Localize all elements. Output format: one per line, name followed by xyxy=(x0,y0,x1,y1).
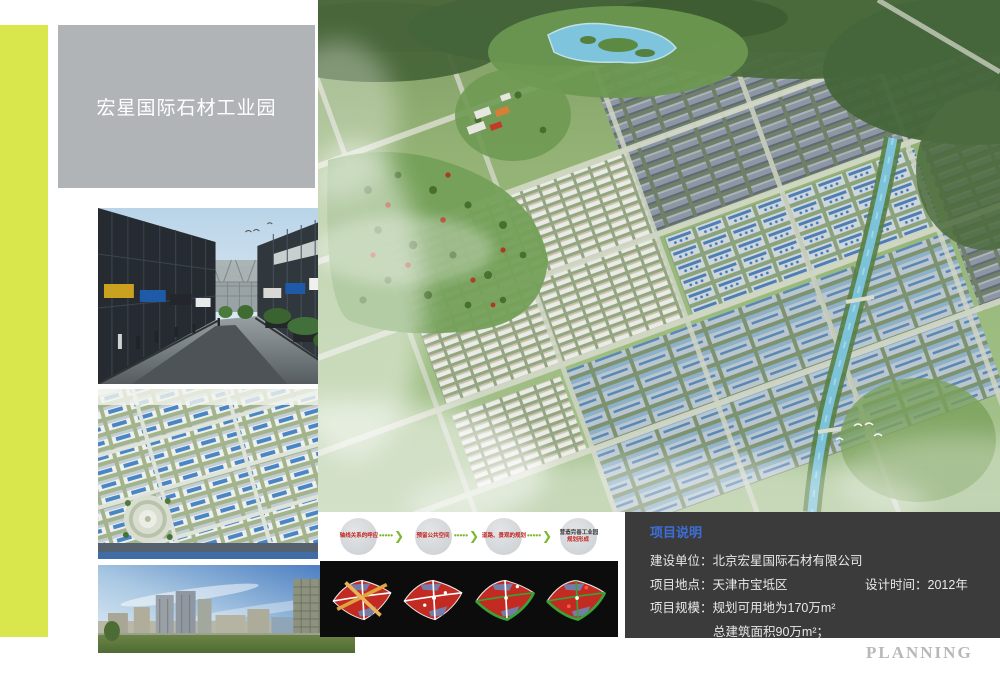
flow-step-4-label: 营造完善工业园 xyxy=(559,530,598,536)
builder-label: 建设单位： xyxy=(650,554,713,568)
diagram-landscape-analysis xyxy=(472,571,538,627)
photo-skyline-view xyxy=(98,565,355,653)
flow-step-1: 轴线关系的呼应 xyxy=(340,518,377,555)
flow-step-4-sublabel: 规划形成 xyxy=(567,537,589,543)
flow-step-3-label: 道路、景观的规划 xyxy=(481,533,525,539)
info-row-floor-area: 总建筑面积90万m²； xyxy=(650,621,1000,645)
flow-step-4: 营造完善工业园 规划形成 xyxy=(560,518,597,555)
location-value: 天津市宝坻区 xyxy=(713,578,788,592)
design-time-label: 设计时间： xyxy=(865,578,928,592)
builder-value: 北京宏星国际石材有限公司 xyxy=(713,554,863,568)
design-time-value: 2012年 xyxy=(928,578,968,592)
masterplan-image xyxy=(318,0,1000,512)
diagram-plan-synthesis xyxy=(543,571,609,627)
photo-street-view xyxy=(98,208,355,384)
board-title: 宏星国际石材工业园 xyxy=(96,93,276,120)
info-row-builder: 建设单位：北京宏星国际石材有限公司 xyxy=(650,550,1000,574)
concept-flow: 轴线关系的呼应 •••••❯ 预留公共空间 •••••❯ 道路、景观的规划 ••… xyxy=(318,512,622,561)
flow-step-2-label: 预留公共空间 xyxy=(417,533,450,539)
info-panel-title: 项目说明 xyxy=(650,522,1000,541)
scale-value: 规划可用地为170万m² xyxy=(713,601,836,615)
info-row-scale: 项目规模：规划可用地为170万m² xyxy=(650,597,1000,621)
flow-arrow-icon: •••••❯ xyxy=(454,531,479,541)
photo-aerial-park xyxy=(98,389,355,559)
design-time: 设计时间：2012年 xyxy=(865,574,968,598)
flow-arrow-icon: •••••❯ xyxy=(527,531,552,541)
skyline-image xyxy=(98,565,355,653)
street-view-image xyxy=(98,208,355,384)
presentation-board: 宏星国际石材工业园 xyxy=(0,0,1000,678)
project-info-panel: 项目说明 建设单位：北京宏星国际石材有限公司 项目地点：天津市宝坻区 设计时间：… xyxy=(625,512,1000,638)
floor-area-value: 总建筑面积90万m²； xyxy=(713,625,829,639)
diagram-axis-analysis xyxy=(329,571,395,627)
masterplan-rendering xyxy=(318,0,1000,512)
planning-watermark: PLANNING xyxy=(866,643,973,663)
scale-label: 项目规模： xyxy=(650,601,713,615)
location-label: 项目地点： xyxy=(650,578,713,592)
flow-step-1-label: 轴线关系的呼应 xyxy=(339,533,378,539)
accent-bar xyxy=(0,25,48,637)
flow-step-3: 道路、景观的规划 xyxy=(485,518,522,555)
aerial-park-image xyxy=(98,389,355,559)
flow-step-2: 预留公共空间 xyxy=(415,518,452,555)
info-row-location: 项目地点：天津市宝坻区 设计时间：2012年 xyxy=(650,574,1000,598)
title-box: 宏星国际石材工业园 xyxy=(58,25,315,188)
analysis-diagram-panel xyxy=(320,561,618,637)
flow-arrow-icon: •••••❯ xyxy=(379,531,404,541)
diagram-node-analysis xyxy=(400,571,466,627)
